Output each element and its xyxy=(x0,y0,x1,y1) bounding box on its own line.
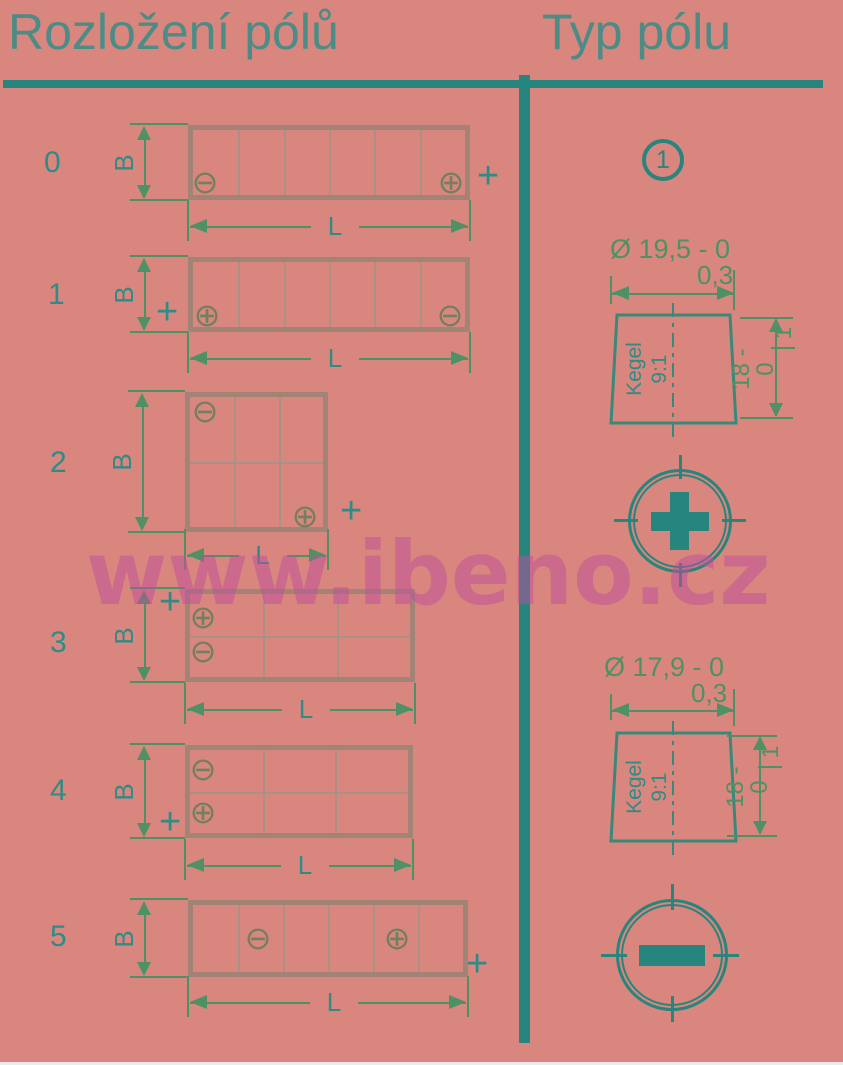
battery-pole-layout-diagram: Rozložení pólů Typ pólu 1 Ø 19,5 - 0 0,3… xyxy=(0,0,843,1065)
pole1-tolerance-bar xyxy=(771,347,795,349)
plus-terminal-icon: ⊕ xyxy=(186,795,220,829)
b-arrow-down xyxy=(137,317,151,331)
column-divider xyxy=(519,75,530,1043)
pole2-height-tolerance: 1 xyxy=(760,742,780,762)
minus-terminal-icon: ⊖ xyxy=(186,634,220,668)
minus-tick-right xyxy=(713,954,739,957)
pole2-dim-arrow-left xyxy=(612,703,629,717)
kegel-label: Kegel xyxy=(622,324,647,414)
row-number-label: 4 xyxy=(50,776,67,806)
b-arrow-up xyxy=(137,901,151,915)
b-arrow-up xyxy=(137,126,151,140)
cell-divider xyxy=(238,130,240,195)
cell-divider xyxy=(418,905,420,972)
left-column-title: Rozložení pólů xyxy=(8,2,339,62)
b-arrow-up xyxy=(137,258,151,272)
cell-divider xyxy=(328,905,330,972)
b-dimension-label: B xyxy=(109,924,139,954)
b-dimension-line xyxy=(144,270,146,319)
minus-tick-left xyxy=(601,954,627,957)
b-extension-top xyxy=(130,743,185,745)
pole2-height-arrow-down xyxy=(753,821,767,835)
pole-type-number-badge: 1 xyxy=(642,139,684,181)
cell-divider xyxy=(329,262,331,327)
b-extension-bottom xyxy=(130,976,188,978)
plus-terminal-icon: ⊕ xyxy=(288,499,322,533)
l-extension-right xyxy=(467,976,469,1017)
pole1-diameter-dim-line xyxy=(612,293,734,295)
external-plus-sign: + xyxy=(159,803,181,841)
pole2-extension-left xyxy=(610,694,612,720)
minus-terminal-icon: ⊖ xyxy=(188,165,222,199)
b-dimension-line xyxy=(144,138,146,187)
minus-terminal-icon: ⊖ xyxy=(186,752,220,786)
cell-divider xyxy=(420,130,422,195)
b-extension-top xyxy=(130,587,185,589)
plus-terminal-icon: ⊕ xyxy=(380,921,414,955)
cell-divider xyxy=(190,636,410,638)
b-dimension-label: B xyxy=(109,148,139,178)
b-dimension-line xyxy=(144,758,146,825)
cell-divider xyxy=(329,130,331,195)
external-plus-sign: + xyxy=(156,293,178,331)
pole1-diameter-label: Ø 19,5 - 0 xyxy=(610,236,730,263)
pole1-diameter-tolerance: 0,3 xyxy=(697,262,733,288)
b-arrow-down xyxy=(135,517,149,531)
pole1-cone-label: Kegel 9:1 xyxy=(622,324,682,414)
b-dimension-label: B xyxy=(109,621,139,651)
l-arrow-right xyxy=(396,702,413,716)
pole1-height-label: 18 - 0 xyxy=(742,339,766,399)
l-arrow-right xyxy=(449,995,466,1009)
kegel-ratio: 9:1 xyxy=(647,742,672,832)
b-arrow-up xyxy=(137,746,151,760)
right-column-title: Typ pólu xyxy=(542,2,731,62)
l-dimension-label: L xyxy=(282,696,330,722)
minus-tick-top xyxy=(671,884,674,910)
pole2-diameter-dim-line xyxy=(612,710,734,712)
pole2-dim-arrow-right xyxy=(717,703,734,717)
external-plus-sign: + xyxy=(340,492,362,530)
minus-terminal-icon: ⊖ xyxy=(188,394,222,428)
l-arrow-left xyxy=(190,351,207,365)
cell-divider xyxy=(190,462,323,464)
pole2-height-tick-top xyxy=(727,735,777,737)
plus-tick-left xyxy=(614,519,638,522)
b-dimension-line xyxy=(144,602,146,669)
l-extension-right xyxy=(327,529,329,570)
l-extension-right xyxy=(469,200,471,241)
plus-terminal-icon: ⊕ xyxy=(190,298,224,332)
l-extension-right xyxy=(412,839,414,880)
pole1-height-tick-bottom xyxy=(740,417,793,419)
row-number-label: 1 xyxy=(48,280,65,310)
l-extension-right xyxy=(414,683,416,724)
battery-outline-row-0 xyxy=(188,125,470,200)
b-arrow-down xyxy=(137,823,151,837)
l-arrow-left xyxy=(190,995,207,1009)
b-arrow-down xyxy=(137,962,151,976)
l-extension-left xyxy=(184,839,186,880)
b-arrow-down xyxy=(137,185,151,199)
plus-terminal-icon: ⊕ xyxy=(186,600,220,634)
pole1-dim-arrow-left xyxy=(612,286,629,300)
battery-outline-row-5 xyxy=(188,900,468,977)
l-arrow-right xyxy=(451,351,468,365)
plus-tick-top xyxy=(679,455,682,479)
b-arrow-up xyxy=(137,590,151,604)
l-extension-left xyxy=(184,529,186,570)
l-extension-right xyxy=(469,332,471,373)
b-arrow-down xyxy=(137,667,151,681)
b-dimension-label: B xyxy=(109,280,139,310)
l-arrow-left xyxy=(187,548,204,562)
plus-terminal-icon: ⊕ xyxy=(434,165,468,199)
b-extension-top xyxy=(128,390,185,392)
pole1-height-tick-top xyxy=(740,317,793,319)
b-dimension-label: B xyxy=(107,447,137,477)
kegel-ratio: 9:1 xyxy=(647,324,672,414)
plus-tick-right xyxy=(722,519,746,522)
pole1-height-arrow-down xyxy=(769,403,783,417)
cell-divider xyxy=(373,905,375,972)
external-plus-sign: + xyxy=(466,945,488,983)
plus-icon-vertical xyxy=(670,492,689,550)
minus-tick-bottom xyxy=(671,996,674,1022)
pole-type-number: 1 xyxy=(656,146,670,175)
l-extension-left xyxy=(187,332,189,373)
pole2-tolerance-bar xyxy=(758,766,782,768)
cell-divider xyxy=(374,130,376,195)
row-number-label: 3 xyxy=(50,628,67,658)
cell-divider xyxy=(374,262,376,327)
l-extension-left xyxy=(184,683,186,724)
kegel-label: Kegel xyxy=(622,742,647,832)
row-number-label: 2 xyxy=(50,448,67,478)
row-number-label: 0 xyxy=(44,148,61,178)
cell-divider xyxy=(283,905,285,972)
l-dimension-label: L xyxy=(311,213,359,239)
pole2-height-tick-bottom xyxy=(727,835,777,837)
l-extension-left xyxy=(187,976,189,1017)
minus-terminal-icon: ⊖ xyxy=(433,298,467,332)
pole2-height-label: 18 - 0 xyxy=(736,757,760,817)
b-extension-bottom xyxy=(128,531,185,533)
b-dimension-line xyxy=(144,913,146,964)
l-dimension-label: L xyxy=(281,852,329,878)
b-dimension-line xyxy=(142,405,144,519)
row-number-label: 5 xyxy=(50,922,67,952)
pole2-diameter-label: Ø 17,9 - 0 xyxy=(604,654,724,681)
cell-divider xyxy=(238,262,240,327)
b-extension-top xyxy=(130,123,188,125)
pole1-dim-arrow-right xyxy=(717,286,734,300)
b-extension-bottom xyxy=(130,199,188,201)
l-extension-left xyxy=(187,200,189,241)
b-extension-bottom xyxy=(130,331,188,333)
b-arrow-up xyxy=(135,393,149,407)
cell-divider xyxy=(284,262,286,327)
b-extension-bottom xyxy=(130,681,185,683)
b-extension-top xyxy=(130,255,188,257)
l-arrow-right xyxy=(451,219,468,233)
pole2-cone-label: Kegel 9:1 xyxy=(622,742,682,832)
l-arrow-left xyxy=(187,858,204,872)
plus-tick-bottom xyxy=(679,563,682,587)
l-arrow-left xyxy=(187,702,204,716)
cell-divider xyxy=(420,262,422,327)
cell-divider xyxy=(284,130,286,195)
l-dimension-label: L xyxy=(310,989,358,1015)
b-extension-bottom xyxy=(130,837,185,839)
b-dimension-label: B xyxy=(109,777,139,807)
l-arrow-left xyxy=(190,219,207,233)
cell-divider xyxy=(238,905,240,972)
header-rule xyxy=(3,80,823,88)
pole1-height-tolerance: 1 xyxy=(773,323,793,343)
battery-outline-row-1 xyxy=(188,257,470,332)
minus-terminal-icon: ⊖ xyxy=(241,921,275,955)
external-plus-sign: + xyxy=(477,157,499,195)
l-dimension-label: L xyxy=(311,345,359,371)
b-extension-top xyxy=(130,898,188,900)
l-arrow-right xyxy=(394,858,411,872)
minus-icon xyxy=(639,945,705,966)
l-dimension-label: L xyxy=(239,542,287,568)
cell-divider xyxy=(190,792,408,794)
l-arrow-right xyxy=(309,548,326,562)
